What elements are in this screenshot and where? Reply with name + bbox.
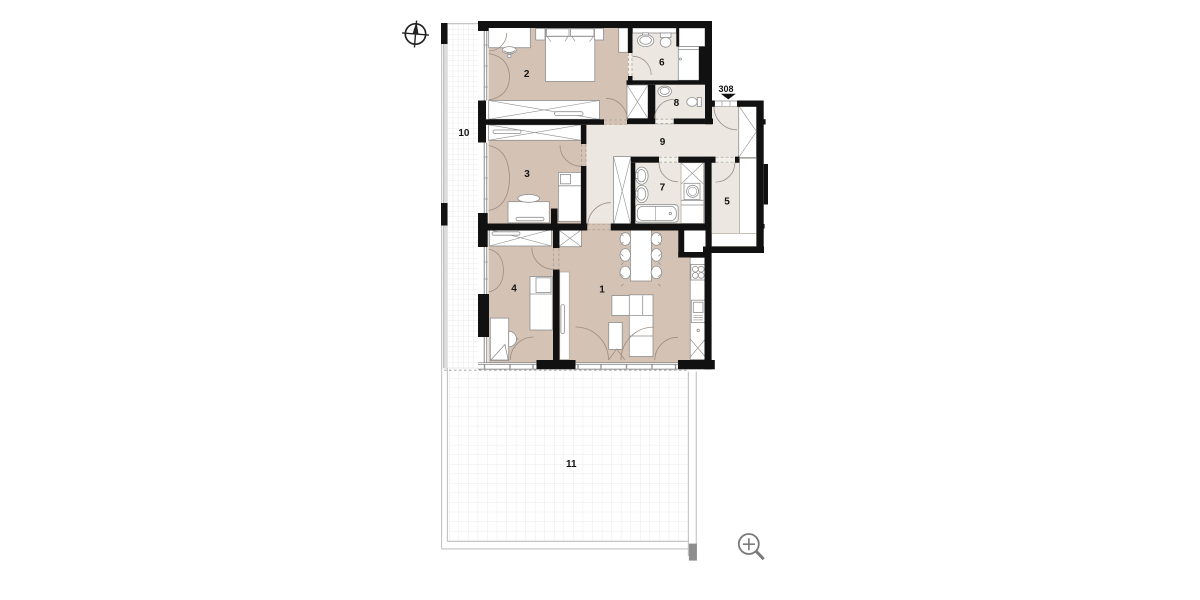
svg-text:8: 8 [674,98,680,109]
svg-text:4: 4 [511,284,517,295]
svg-text:3: 3 [524,169,530,180]
svg-text:2: 2 [524,69,530,80]
svg-text:11: 11 [566,459,577,470]
svg-text:10: 10 [458,128,470,139]
svg-text:1: 1 [599,285,605,296]
svg-text:5: 5 [724,197,730,208]
svg-text:7: 7 [660,183,666,194]
svg-text:308: 308 [718,84,733,94]
svg-text:6: 6 [659,58,665,69]
svg-text:9: 9 [660,137,666,148]
